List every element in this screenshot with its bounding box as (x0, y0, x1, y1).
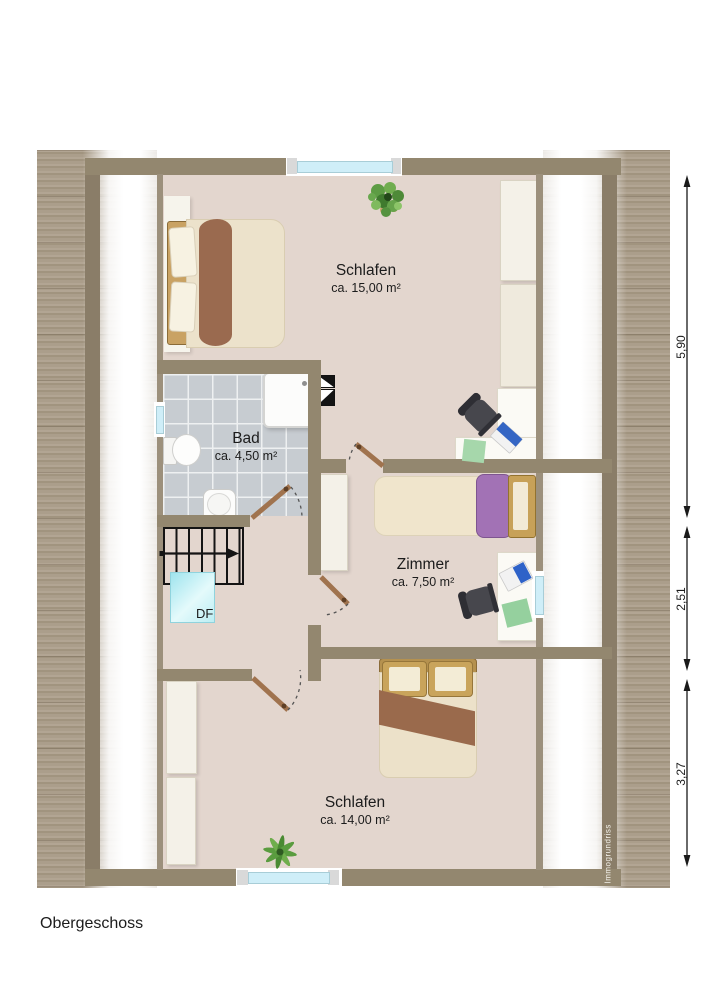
wardrobe-top-right-a (500, 180, 537, 281)
pillow (382, 661, 427, 697)
page-title: Obergeschoss (40, 915, 143, 933)
wardrobe-hall (320, 474, 348, 571)
window-bath (156, 406, 164, 434)
room-area: ca. 15,00 m² (296, 281, 436, 296)
pillow (168, 226, 197, 278)
exterior-wall-bottom (85, 869, 621, 886)
knee-wall-right (536, 174, 543, 870)
room-label-bad: Bad ca. 4,50 m² (186, 430, 306, 464)
room-name: Zimmer (353, 556, 493, 574)
bed-blanket-top (199, 219, 232, 346)
room-name: Bad (186, 430, 306, 448)
exterior-wall-right (602, 158, 617, 886)
room-area: ca. 7,50 m² (353, 575, 493, 590)
window-top (297, 161, 393, 173)
room-name: Schlafen (285, 794, 425, 812)
wardrobe-bottom-left-b (166, 777, 196, 865)
room-area: ca. 4,50 m² (186, 449, 306, 464)
wardrobe-top-right-b (500, 284, 537, 387)
wall-schlafen15-bottom-b (383, 459, 612, 473)
room-label-schlafen-bottom: Schlafen ca. 14,00 m² (285, 794, 425, 828)
bed-bottom (377, 656, 477, 778)
watermark: Immogrundriss (604, 828, 613, 884)
dimension-label-middle: 2,51 (674, 584, 688, 614)
window-bottom (248, 872, 330, 884)
wall-schlafen15-bottom-a (308, 459, 346, 473)
wall-hall-bottom (157, 669, 252, 681)
wall-bath-top (157, 360, 321, 374)
room-label-zimmer: Zimmer ca. 7,50 m² (353, 556, 493, 590)
pillow (428, 661, 473, 697)
room-label-schlafen-top: Schlafen ca. 15,00 m² (296, 262, 436, 296)
room-area: ca. 14,00 m² (285, 813, 425, 828)
exterior-wall-left (85, 158, 100, 886)
dimension-label-top: 5,90 (674, 332, 688, 362)
window-jamb (237, 870, 248, 885)
bed-blanket-zimmer (476, 474, 512, 538)
pillow (169, 281, 198, 332)
window-zimmer (535, 576, 544, 615)
wall-zimmer-bottom (308, 647, 612, 659)
wall-bath-bottom (157, 515, 250, 527)
bed-headboard-zimmer (508, 475, 536, 538)
floor-plan: Schlafen ca. 15,00 m² Bad ca. 4,50 m² Zi… (0, 0, 706, 1000)
wall-middle-vertical (308, 374, 321, 575)
room-name: Schlafen (296, 262, 436, 280)
dimension-label-bottom: 3,27 (674, 759, 688, 789)
bed-mattress-zimmer (374, 476, 482, 536)
wardrobe-bottom-left-a (166, 681, 197, 774)
skylight-label: DF (196, 606, 213, 621)
window-jamb (287, 158, 297, 174)
